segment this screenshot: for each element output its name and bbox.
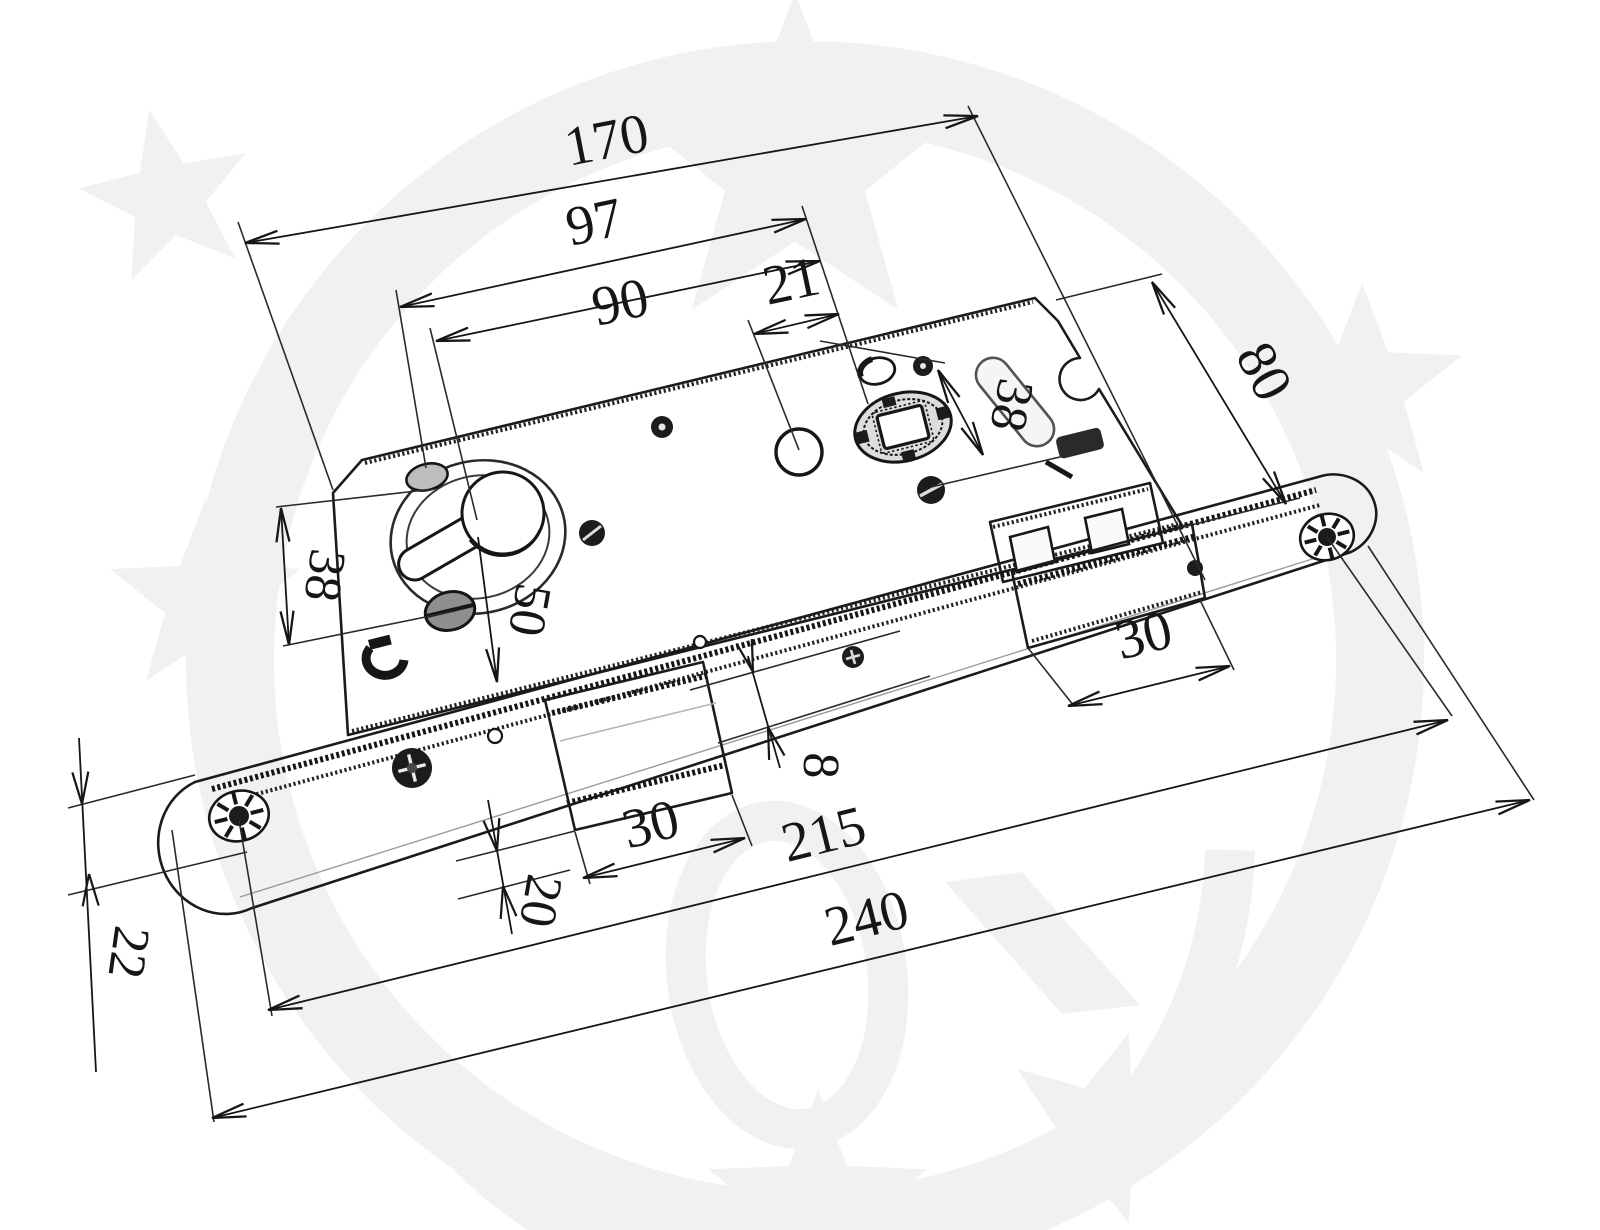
lower-screw bbox=[917, 476, 945, 504]
dim-label-38-follower: 38 bbox=[978, 374, 1044, 436]
dim-line-22 bbox=[79, 738, 96, 1072]
dim-label-90: 90 bbox=[586, 266, 654, 338]
watermark-emblem bbox=[66, 0, 1462, 1230]
dim-label-22: 22 bbox=[96, 923, 160, 982]
faceplate-screw-small bbox=[842, 646, 864, 668]
bent-tab-right bbox=[1046, 427, 1105, 477]
faceplate bbox=[158, 474, 1376, 913]
dim-label-20: 20 bbox=[508, 870, 573, 931]
dim-label-38-cylinder: 38 bbox=[292, 546, 356, 605]
dim-label-97: 97 bbox=[560, 186, 628, 258]
lock-case-body bbox=[333, 298, 1183, 735]
dim-line-8 bbox=[748, 656, 780, 768]
bent-tab-left bbox=[366, 635, 404, 676]
lock-dimension-drawing: 170 97 90 21 80 38 38 50 30 30 20 8 215 … bbox=[0, 0, 1600, 1230]
dim-label-21: 21 bbox=[757, 245, 825, 317]
dim-label-30-latch: 30 bbox=[616, 788, 685, 862]
case-screw-small-1 bbox=[651, 416, 673, 438]
slot-screw bbox=[421, 587, 479, 636]
faceplate-hole-small-mid bbox=[694, 636, 706, 648]
faceplate-hole-small-left bbox=[488, 729, 502, 743]
latch-bevel-line bbox=[560, 703, 716, 741]
dim-line-50 bbox=[478, 537, 497, 682]
follower-hole bbox=[847, 382, 959, 472]
dim-line-21 bbox=[754, 314, 839, 334]
lock-case bbox=[333, 298, 1183, 735]
watermark-seven-glyph bbox=[945, 872, 1140, 1014]
follower-screw-left bbox=[856, 354, 897, 388]
case-screw-small-2 bbox=[579, 520, 605, 546]
technical-drawing-page: 170 97 90 21 80 38 38 50 30 30 20 8 215 … bbox=[0, 0, 1600, 1230]
dim-label-50: 50 bbox=[497, 579, 562, 640]
case-round-hole bbox=[776, 429, 822, 475]
faceplate-screw-mid bbox=[388, 744, 436, 792]
dim-label-8: 8 bbox=[792, 752, 850, 780]
watermark-star-top-left bbox=[66, 92, 267, 287]
dim-line-30-deadbolt bbox=[1068, 666, 1230, 706]
